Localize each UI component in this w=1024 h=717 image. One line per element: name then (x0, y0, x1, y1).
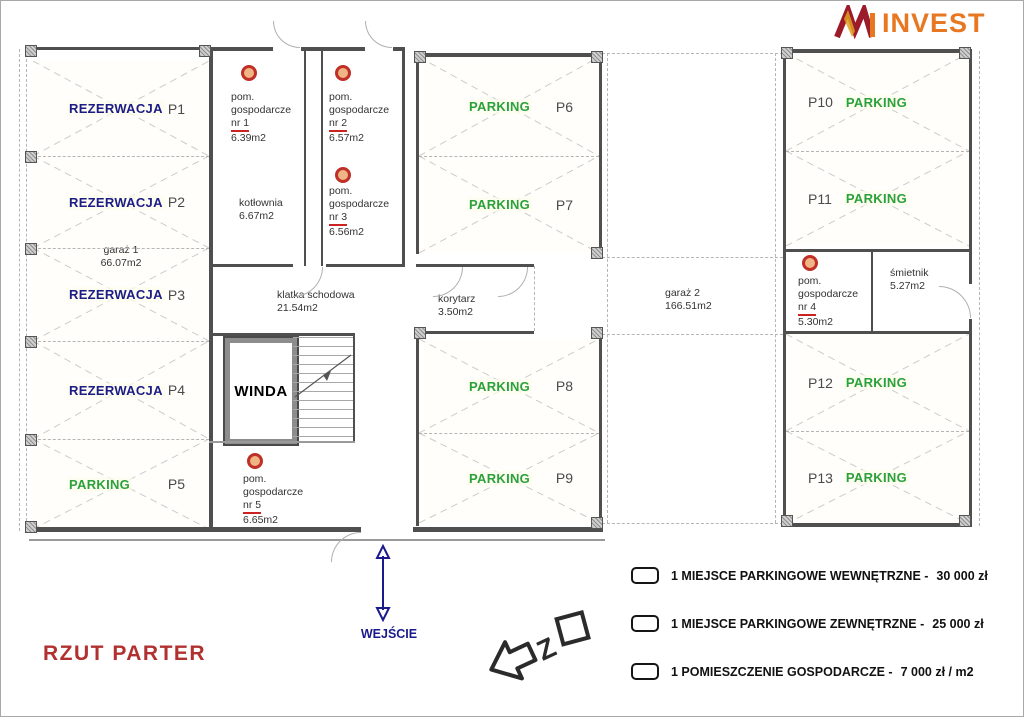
room-area: 3.50m2 (438, 306, 475, 319)
dashed-line (602, 334, 783, 335)
stall-status: PARKING (467, 471, 532, 486)
wall-segment (209, 264, 293, 267)
dashed-line (33, 248, 209, 249)
wall-segment (402, 47, 405, 266)
dashed-line (19, 49, 20, 531)
stall-status: REZERWACJA (67, 383, 165, 398)
legend-item: 1 MIEJSCE PARKINGOWE WEWNĘTRZNE - 30 000… (631, 567, 1011, 584)
wall-segment (599, 53, 602, 254)
column-pillar (25, 45, 37, 57)
room-label-klatka-schodowa: klatka schodowa 21.54m2 (277, 289, 355, 315)
stall-p12: P12 PARKING (786, 334, 969, 431)
room-number: nr 5 (243, 499, 261, 514)
wall-segment (209, 333, 355, 336)
logo-m-icon (834, 5, 880, 41)
stall-p5: PARKING P5 (33, 439, 209, 529)
wall-segment (304, 47, 306, 266)
wall-segment (783, 49, 786, 526)
column-pillar (414, 51, 426, 63)
stall-p4: REZERWACJA P4 (33, 341, 209, 439)
wall-segment (871, 249, 873, 331)
stall-status: PARKING (844, 95, 909, 110)
room-number: nr 1 (231, 117, 249, 132)
room-label-kotlownia: kotłownia 6.67m2 (239, 197, 283, 223)
door-arc (331, 532, 361, 562)
wall-segment (29, 539, 605, 541)
column-pillar (959, 515, 971, 527)
room-area: 5.30m2 (798, 316, 858, 329)
stall-status: PARKING (844, 470, 909, 485)
wall-segment (353, 333, 355, 443)
storage-marker-icon (241, 65, 257, 81)
stall-status: REZERWACJA (67, 195, 165, 210)
compass-west-icon: Z (471, 601, 611, 706)
stall-p2: REZERWACJA P2 (33, 156, 209, 248)
stall-id: P12 (808, 375, 833, 391)
dashed-line (775, 53, 776, 523)
dashed-line (602, 53, 783, 54)
room-label-korytarz: korytarz 3.50m2 (438, 293, 475, 319)
room-label-pg4: pom. gospodarcze nr 4 5.30m2 (798, 275, 858, 329)
room-label-pg2: pom. gospodarcze nr 2 6.57m2 (329, 91, 389, 145)
room-label-smietnik: śmietnik 5.27m2 (890, 267, 929, 293)
stall-p11: P11 PARKING (786, 151, 969, 246)
legend-swatch-icon (631, 615, 659, 632)
column-pillar (25, 151, 37, 163)
column-pillar (959, 47, 971, 59)
stall-id: P9 (556, 470, 573, 486)
dashed-line (786, 151, 969, 152)
stall-id: P4 (168, 382, 185, 398)
stall-id: P2 (168, 194, 185, 210)
wall-segment (321, 47, 323, 266)
legend-price: 25 000 zł (932, 617, 983, 631)
wall-segment (969, 319, 972, 526)
stall-status: PARKING (844, 191, 909, 206)
door-arc (365, 21, 392, 48)
stall-id: P5 (168, 476, 185, 492)
dashed-line (786, 431, 969, 432)
dashed-line (534, 266, 535, 331)
column-pillar (199, 45, 211, 57)
wall-segment (416, 331, 534, 334)
stall-status: PARKING (467, 197, 532, 212)
legend-label: 1 MIEJSCE PARKINGOWE ZEWNĘTRZNE - (671, 617, 924, 631)
dashed-line (33, 156, 209, 157)
column-pillar (591, 51, 603, 63)
legend-swatch-icon (631, 663, 659, 680)
stall-id: P3 (168, 287, 185, 303)
column-pillar (25, 521, 37, 533)
dashed-line (602, 523, 783, 524)
room-label-pg5: pom. gospodarcze nr 5 6.65m2 (243, 473, 303, 527)
room-number: nr 2 (329, 117, 347, 132)
room-number: nr 4 (798, 301, 816, 316)
wall-segment (209, 47, 213, 531)
stall-status: REZERWACJA (67, 287, 165, 302)
room-area: 6.67m2 (239, 210, 283, 223)
stall-status: PARKING (67, 477, 132, 492)
room-area: 166.51m2 (665, 300, 712, 313)
wall-segment (326, 264, 405, 267)
wall-segment (416, 336, 419, 526)
minvest-logo: INVEST (834, 5, 986, 41)
stall-id: P6 (556, 99, 573, 115)
wall-segment (969, 49, 972, 284)
stall-p10: P10 PARKING (786, 53, 969, 151)
room-area: 6.56m2 (329, 226, 389, 239)
wall-segment (416, 53, 419, 254)
wall-segment (416, 53, 602, 57)
room-area: 6.65m2 (243, 514, 303, 527)
wall-segment (783, 49, 972, 53)
wall-segment (783, 249, 969, 252)
stall-id: P1 (168, 101, 185, 117)
column-pillar (781, 515, 793, 527)
stall-p9: PARKING P9 (419, 433, 599, 523)
column-pillar (591, 517, 603, 529)
dashed-line (607, 53, 608, 523)
room-label-pg3: pom. gospodarcze nr 3 6.56m2 (329, 185, 389, 239)
elevator-winda: WINDA (225, 338, 297, 444)
dashed-line (26, 49, 27, 531)
stall-id: P8 (556, 378, 573, 394)
entrance-label: WEJŚCIE (349, 627, 429, 641)
dashed-line (33, 439, 209, 440)
dashed-line (419, 156, 599, 157)
legend-price: 30 000 zł (936, 569, 987, 583)
legend-swatch-icon (631, 567, 659, 584)
staircase-direction-line (293, 337, 353, 441)
column-pillar (25, 243, 37, 255)
legend-item: 1 MIEJSCE PARKINGOWE ZEWNĘTRZNE - 25 000… (631, 615, 1011, 632)
wall-segment (413, 527, 603, 532)
door-arc (273, 21, 300, 48)
storage-marker-icon (247, 453, 263, 469)
room-area: 21.54m2 (277, 302, 355, 315)
room-label-garaz2: garaż 2 166.51m2 (665, 287, 712, 313)
column-pillar (414, 327, 426, 339)
room-area: 66.07m2 (33, 257, 209, 270)
room-area: 5.27m2 (890, 280, 929, 293)
legend-item: 1 POMIESZCZENIE GOSPODARCZE - 7 000 zł /… (631, 663, 1011, 680)
wall-segment (209, 441, 355, 443)
door-arc (939, 286, 971, 318)
storage-marker-icon (335, 65, 351, 81)
dashed-line (602, 257, 783, 258)
wall-segment (599, 336, 602, 526)
page-title: RZUT PARTER (43, 642, 206, 666)
dashed-line (419, 433, 599, 434)
column-pillar (591, 247, 603, 259)
logo-text: INVEST (882, 8, 986, 39)
stall-p1: REZERWACJA P1 (33, 61, 209, 156)
dashed-line (33, 341, 209, 342)
stall-status: REZERWACJA (67, 101, 165, 116)
column-pillar (25, 434, 37, 446)
wall-segment (31, 47, 211, 50)
wall-segment (301, 47, 365, 51)
door-arc (498, 267, 528, 297)
legend-label: 1 POMIESZCZENIE GOSPODARCZE - (671, 665, 893, 679)
column-pillar (25, 336, 37, 348)
wall-segment (31, 527, 361, 532)
stall-p6: PARKING P6 (419, 57, 599, 156)
room-area: 6.39m2 (231, 132, 291, 145)
stall-p7: PARKING P7 (419, 156, 599, 253)
legend-price: 7 000 zł / m2 (901, 665, 974, 679)
floor-plan-page: INVEST REZERWACJA P1 REZERWACJA P2 REZER… (0, 0, 1024, 717)
storage-marker-icon (335, 167, 351, 183)
legend-label: 1 MIEJSCE PARKINGOWE WEWNĘTRZNE - (671, 569, 928, 583)
stall-status: PARKING (467, 99, 532, 114)
stall-id: P13 (808, 470, 833, 486)
stall-id: P11 (808, 191, 832, 207)
wall-segment (209, 47, 273, 51)
room-number: nr 3 (329, 211, 347, 226)
wall-segment (783, 523, 972, 527)
wall-segment (783, 331, 969, 334)
stall-status: PARKING (844, 375, 909, 390)
stall-id: P10 (808, 94, 833, 110)
storage-marker-icon (802, 255, 818, 271)
column-pillar (591, 327, 603, 339)
stall-id: P7 (556, 197, 573, 213)
dashed-line (979, 51, 980, 526)
stall-status: PARKING (467, 379, 532, 394)
room-area: 6.57m2 (329, 132, 389, 145)
stall-p13: P13 PARKING (786, 431, 969, 524)
price-legend: 1 MIEJSCE PARKINGOWE WEWNĘTRZNE - 30 000… (631, 567, 1011, 711)
stall-p8: PARKING P8 (419, 339, 599, 433)
room-label-pg1: pom. gospodarcze nr 1 6.39m2 (231, 91, 291, 145)
entrance-arrow-icon (369, 544, 397, 622)
column-pillar (781, 47, 793, 59)
